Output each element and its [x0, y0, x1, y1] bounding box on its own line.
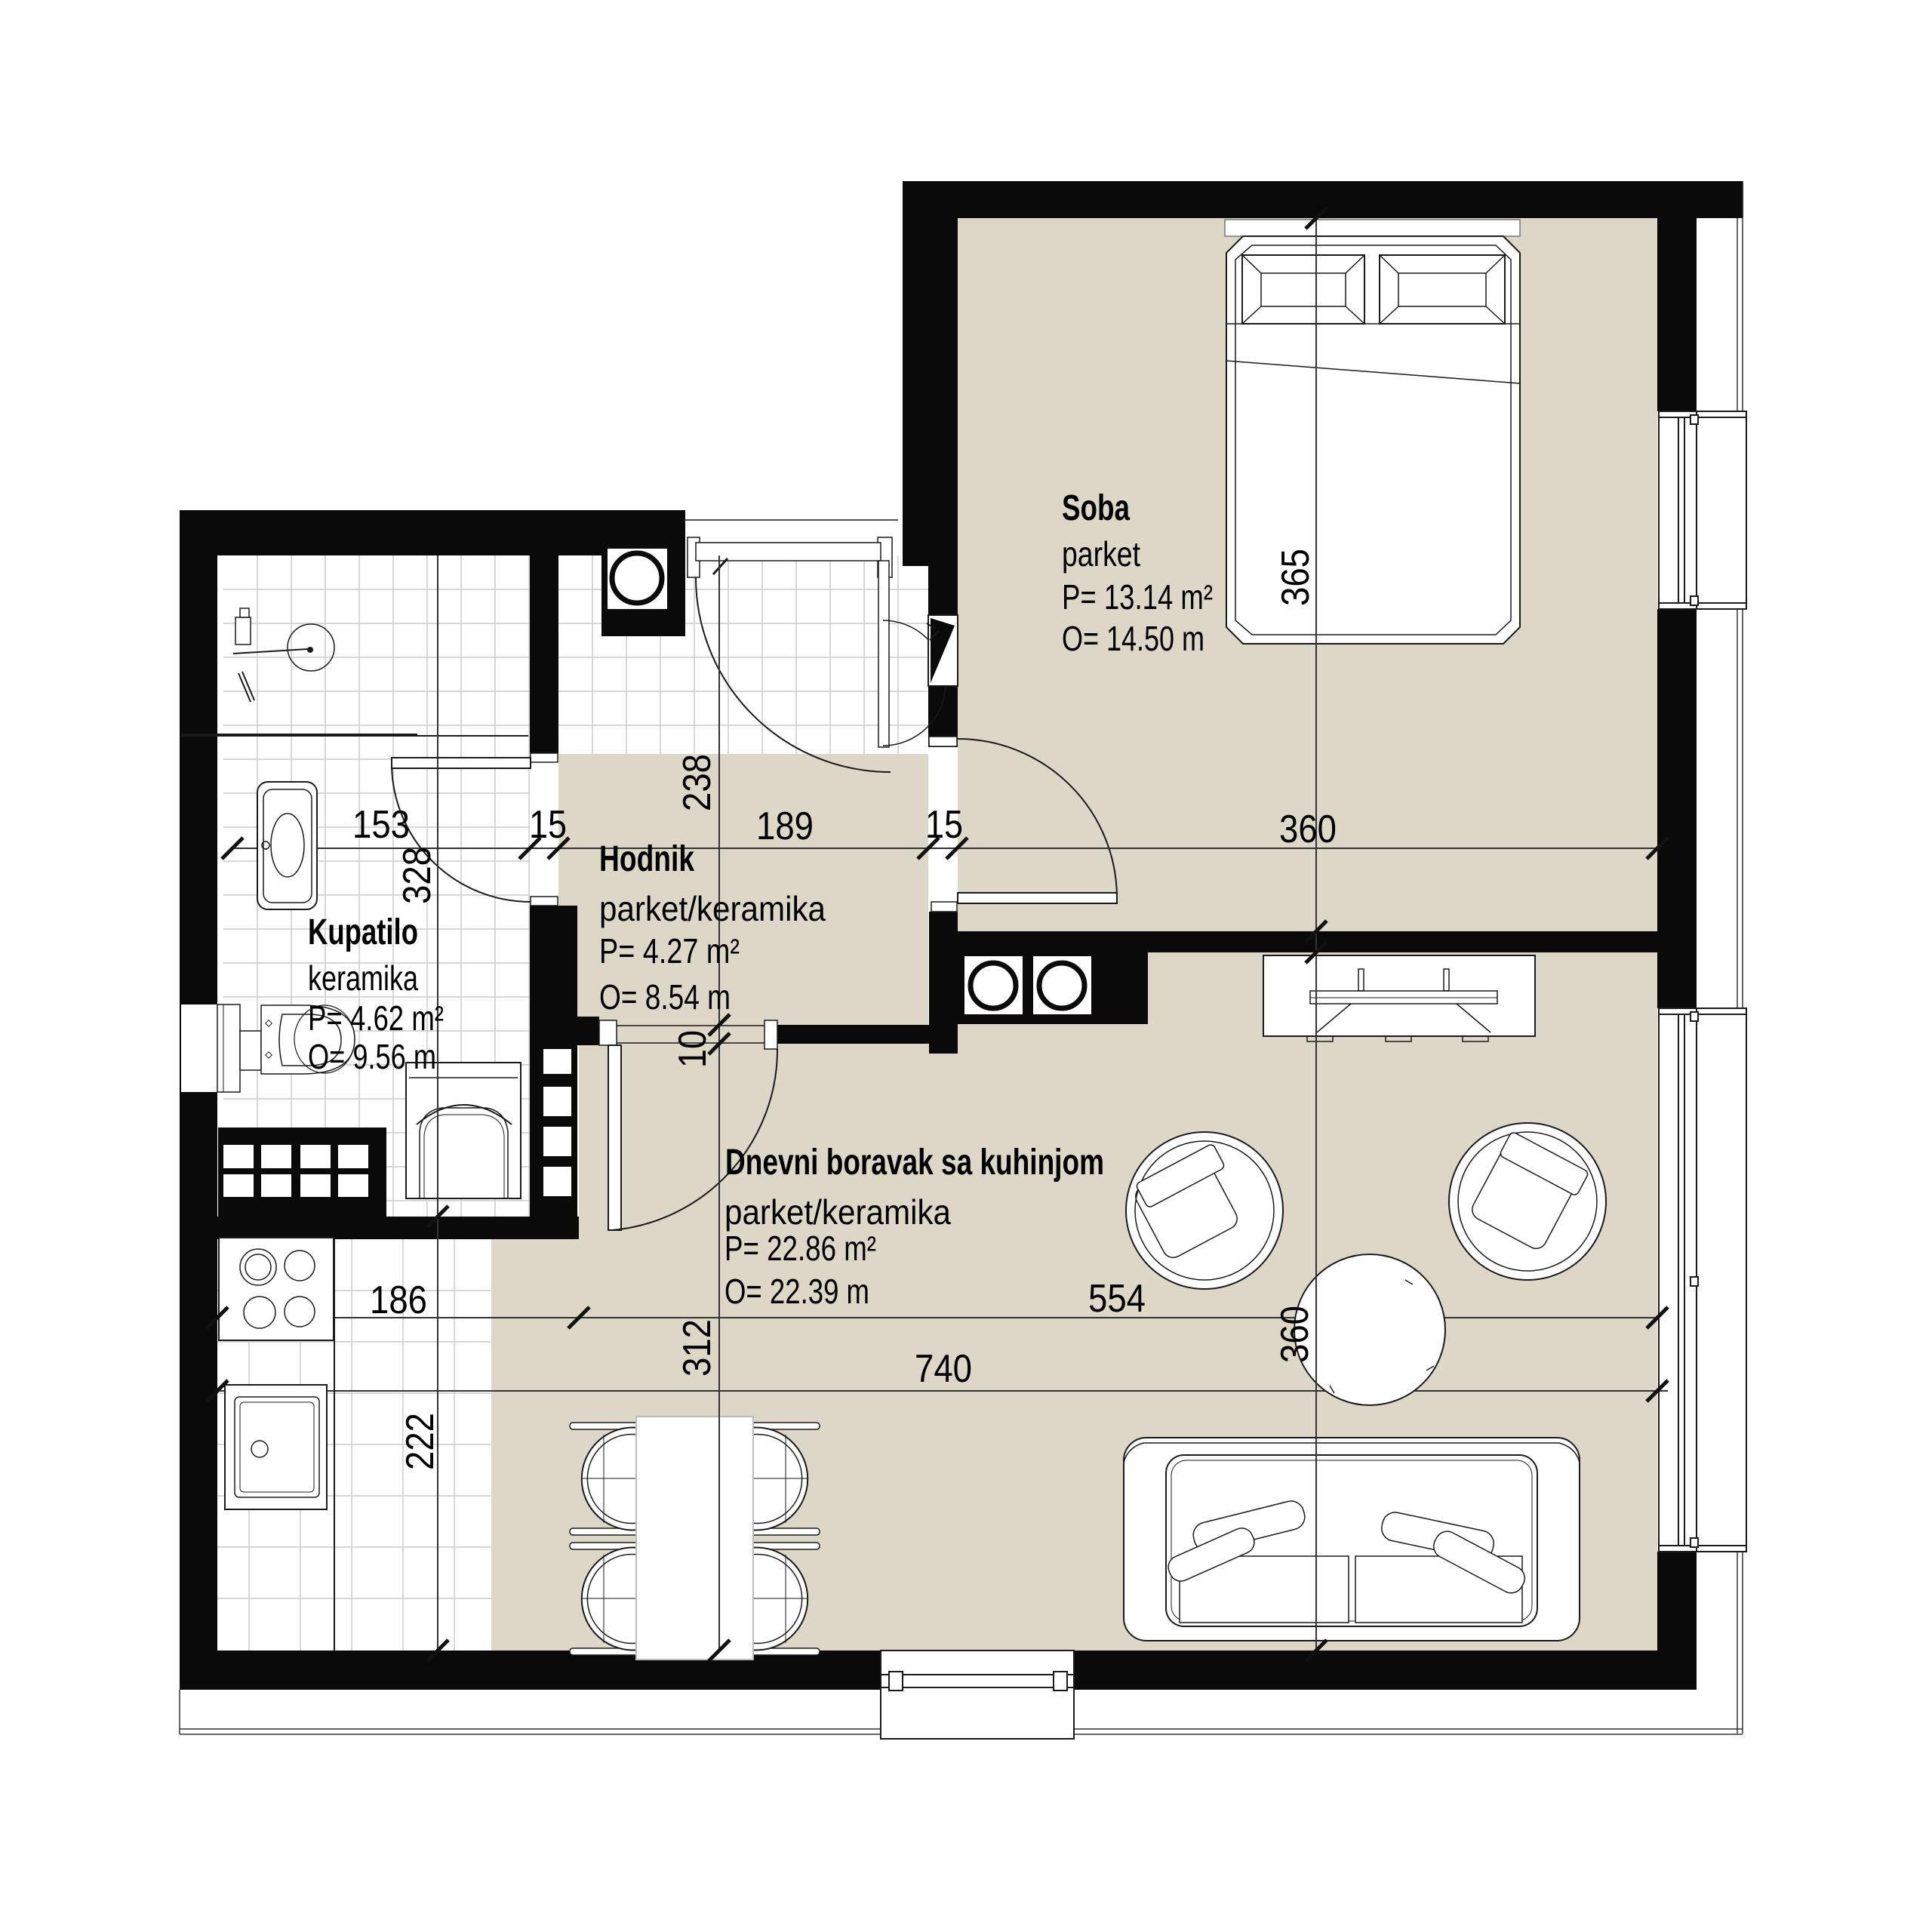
svg-text:15: 15: [925, 803, 963, 847]
svg-text:15: 15: [529, 803, 567, 847]
svg-text:Hodnik: Hodnik: [599, 839, 694, 879]
svg-text:222: 222: [398, 1413, 442, 1470]
svg-text:360: 360: [1279, 808, 1337, 851]
svg-text:238: 238: [675, 754, 719, 811]
svg-text:153: 153: [352, 803, 410, 847]
svg-text:360: 360: [1273, 1306, 1317, 1363]
svg-text:P= 13.14 m²: P= 13.14 m²: [1062, 577, 1213, 617]
svg-text:O= 14.50 m: O= 14.50 m: [1062, 619, 1204, 658]
svg-text:parket/keramika: parket/keramika: [724, 1192, 951, 1232]
svg-text:O= 22.39 m: O= 22.39 m: [724, 1272, 869, 1311]
svg-text:10: 10: [671, 1030, 715, 1068]
svg-text:P= 22.86 m²: P= 22.86 m²: [724, 1229, 876, 1268]
svg-text:312: 312: [675, 1319, 719, 1377]
svg-text:parket: parket: [1062, 534, 1140, 574]
svg-text:Soba: Soba: [1062, 488, 1130, 528]
svg-text:328: 328: [395, 847, 439, 904]
svg-text:740: 740: [915, 1347, 972, 1391]
svg-text:Kupatilo: Kupatilo: [308, 912, 418, 952]
svg-text:parket/keramika: parket/keramika: [599, 889, 826, 928]
svg-text:P= 4.27 m²: P= 4.27 m²: [599, 931, 740, 971]
svg-text:365: 365: [1274, 549, 1318, 606]
svg-text:P= 4.62 m²: P= 4.62 m²: [308, 998, 444, 1038]
svg-text:O= 9.56 m: O= 9.56 m: [308, 1037, 436, 1076]
svg-text:189: 189: [756, 804, 814, 848]
svg-text:554: 554: [1088, 1277, 1146, 1321]
svg-text:Dnevni boravak sa kuhinjom: Dnevni boravak sa kuhinjom: [725, 1143, 1104, 1183]
svg-text:keramika: keramika: [308, 958, 418, 998]
svg-text:186: 186: [370, 1278, 427, 1322]
svg-text:O= 8.54 m: O= 8.54 m: [599, 977, 731, 1017]
